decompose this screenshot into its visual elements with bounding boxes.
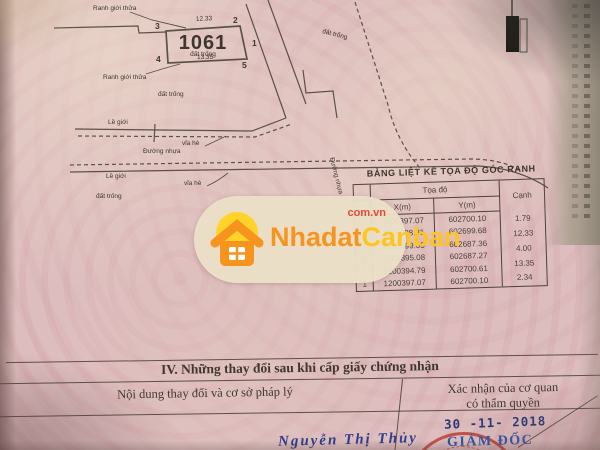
handwritten-name: Nguyễn Thị Thủy xyxy=(278,430,418,450)
road-edge-line xyxy=(268,0,306,104)
sidewalk-arrow-bottom xyxy=(207,173,228,186)
y-cell: 602700.10 xyxy=(436,274,503,289)
point-4-label: 4 xyxy=(156,54,161,64)
empty-land-label-right: đất trống xyxy=(322,26,349,41)
left-column-header: Nội dung thay đổi và cơ sở pháp lý xyxy=(55,383,355,403)
adjacent-page-edge xyxy=(546,0,600,245)
edge-bottom-measure: 13.35 xyxy=(197,54,214,61)
edge-values-cell: 1.79 12.33 4.00 13.35 2.34 xyxy=(500,210,547,287)
scanned-land-certificate-page: Ranh giới thửa Ranh giới thửa 3 2 4 5 1 … xyxy=(0,0,600,450)
curb-label-bottom: Lề giới xyxy=(106,171,126,180)
watermark-pill: NhadatCanban com.vn xyxy=(194,196,406,283)
sidewalk-label-top: vỉa hè xyxy=(182,139,200,147)
adjacent-page-text-blur xyxy=(572,4,578,219)
edge-length: 13.35 xyxy=(503,258,545,268)
sidewalk-arrow-top xyxy=(205,136,226,146)
leader-line-bottom xyxy=(146,64,180,74)
road-name-label: Đường nhựa xyxy=(143,148,181,155)
empty-land-label-bottom: đất trống xyxy=(96,191,122,200)
boundary-label-bottom: Ranh giới thửa xyxy=(103,73,147,81)
date-stamp: 30 -11- 2018 xyxy=(444,413,547,432)
section-iv-changes: IV. Những thay đổi sau khi cấp giấy chứn… xyxy=(0,350,600,450)
north-arrow-symbol xyxy=(506,0,527,52)
brand-tld: com.vn xyxy=(347,207,386,219)
signer-title: GIÁM ĐỐC xyxy=(447,433,534,450)
point-5-label: 5 xyxy=(242,60,247,70)
point-3-label: 3 xyxy=(155,21,160,31)
house-logo-icon xyxy=(207,209,271,269)
dashed-boundary xyxy=(355,2,420,168)
adjacent-page-text-blur xyxy=(584,4,590,219)
edge-length: 2.34 xyxy=(504,272,546,282)
road-name-vertical-label: Đường nhựa xyxy=(328,157,344,195)
point-1-label: 1 xyxy=(252,38,257,48)
road-edge-line xyxy=(246,4,286,118)
sidewalk-label-bottom: vỉa hè xyxy=(184,179,202,187)
brand-part1: Nhadat xyxy=(270,222,362,252)
x-cell: 1200397.07 xyxy=(373,276,436,291)
edge-length: 12.33 xyxy=(502,228,544,238)
edge-length: 4.00 xyxy=(503,243,545,253)
edge-top-measure: 12.33 xyxy=(196,15,213,23)
boundary-label-top: Ranh giới thửa xyxy=(93,4,137,12)
point-2-label: 2 xyxy=(233,15,238,25)
stepped-boundary xyxy=(303,70,337,118)
curb-label-top: Lề giới xyxy=(108,117,128,126)
edge-column-header: Cạnh xyxy=(499,179,545,211)
watermark-brand: NhadatCanban xyxy=(270,222,461,253)
right-column-header: Xác nhận của cơ quan có thẩm quyền xyxy=(412,379,594,411)
brand-part2: Canban xyxy=(362,222,461,252)
road-line-upper xyxy=(75,118,286,131)
boundary-line xyxy=(54,26,166,33)
edge-length: 1.79 xyxy=(502,213,544,223)
empty-land-label-top: đất trống xyxy=(158,89,184,98)
width-tick xyxy=(154,124,155,142)
